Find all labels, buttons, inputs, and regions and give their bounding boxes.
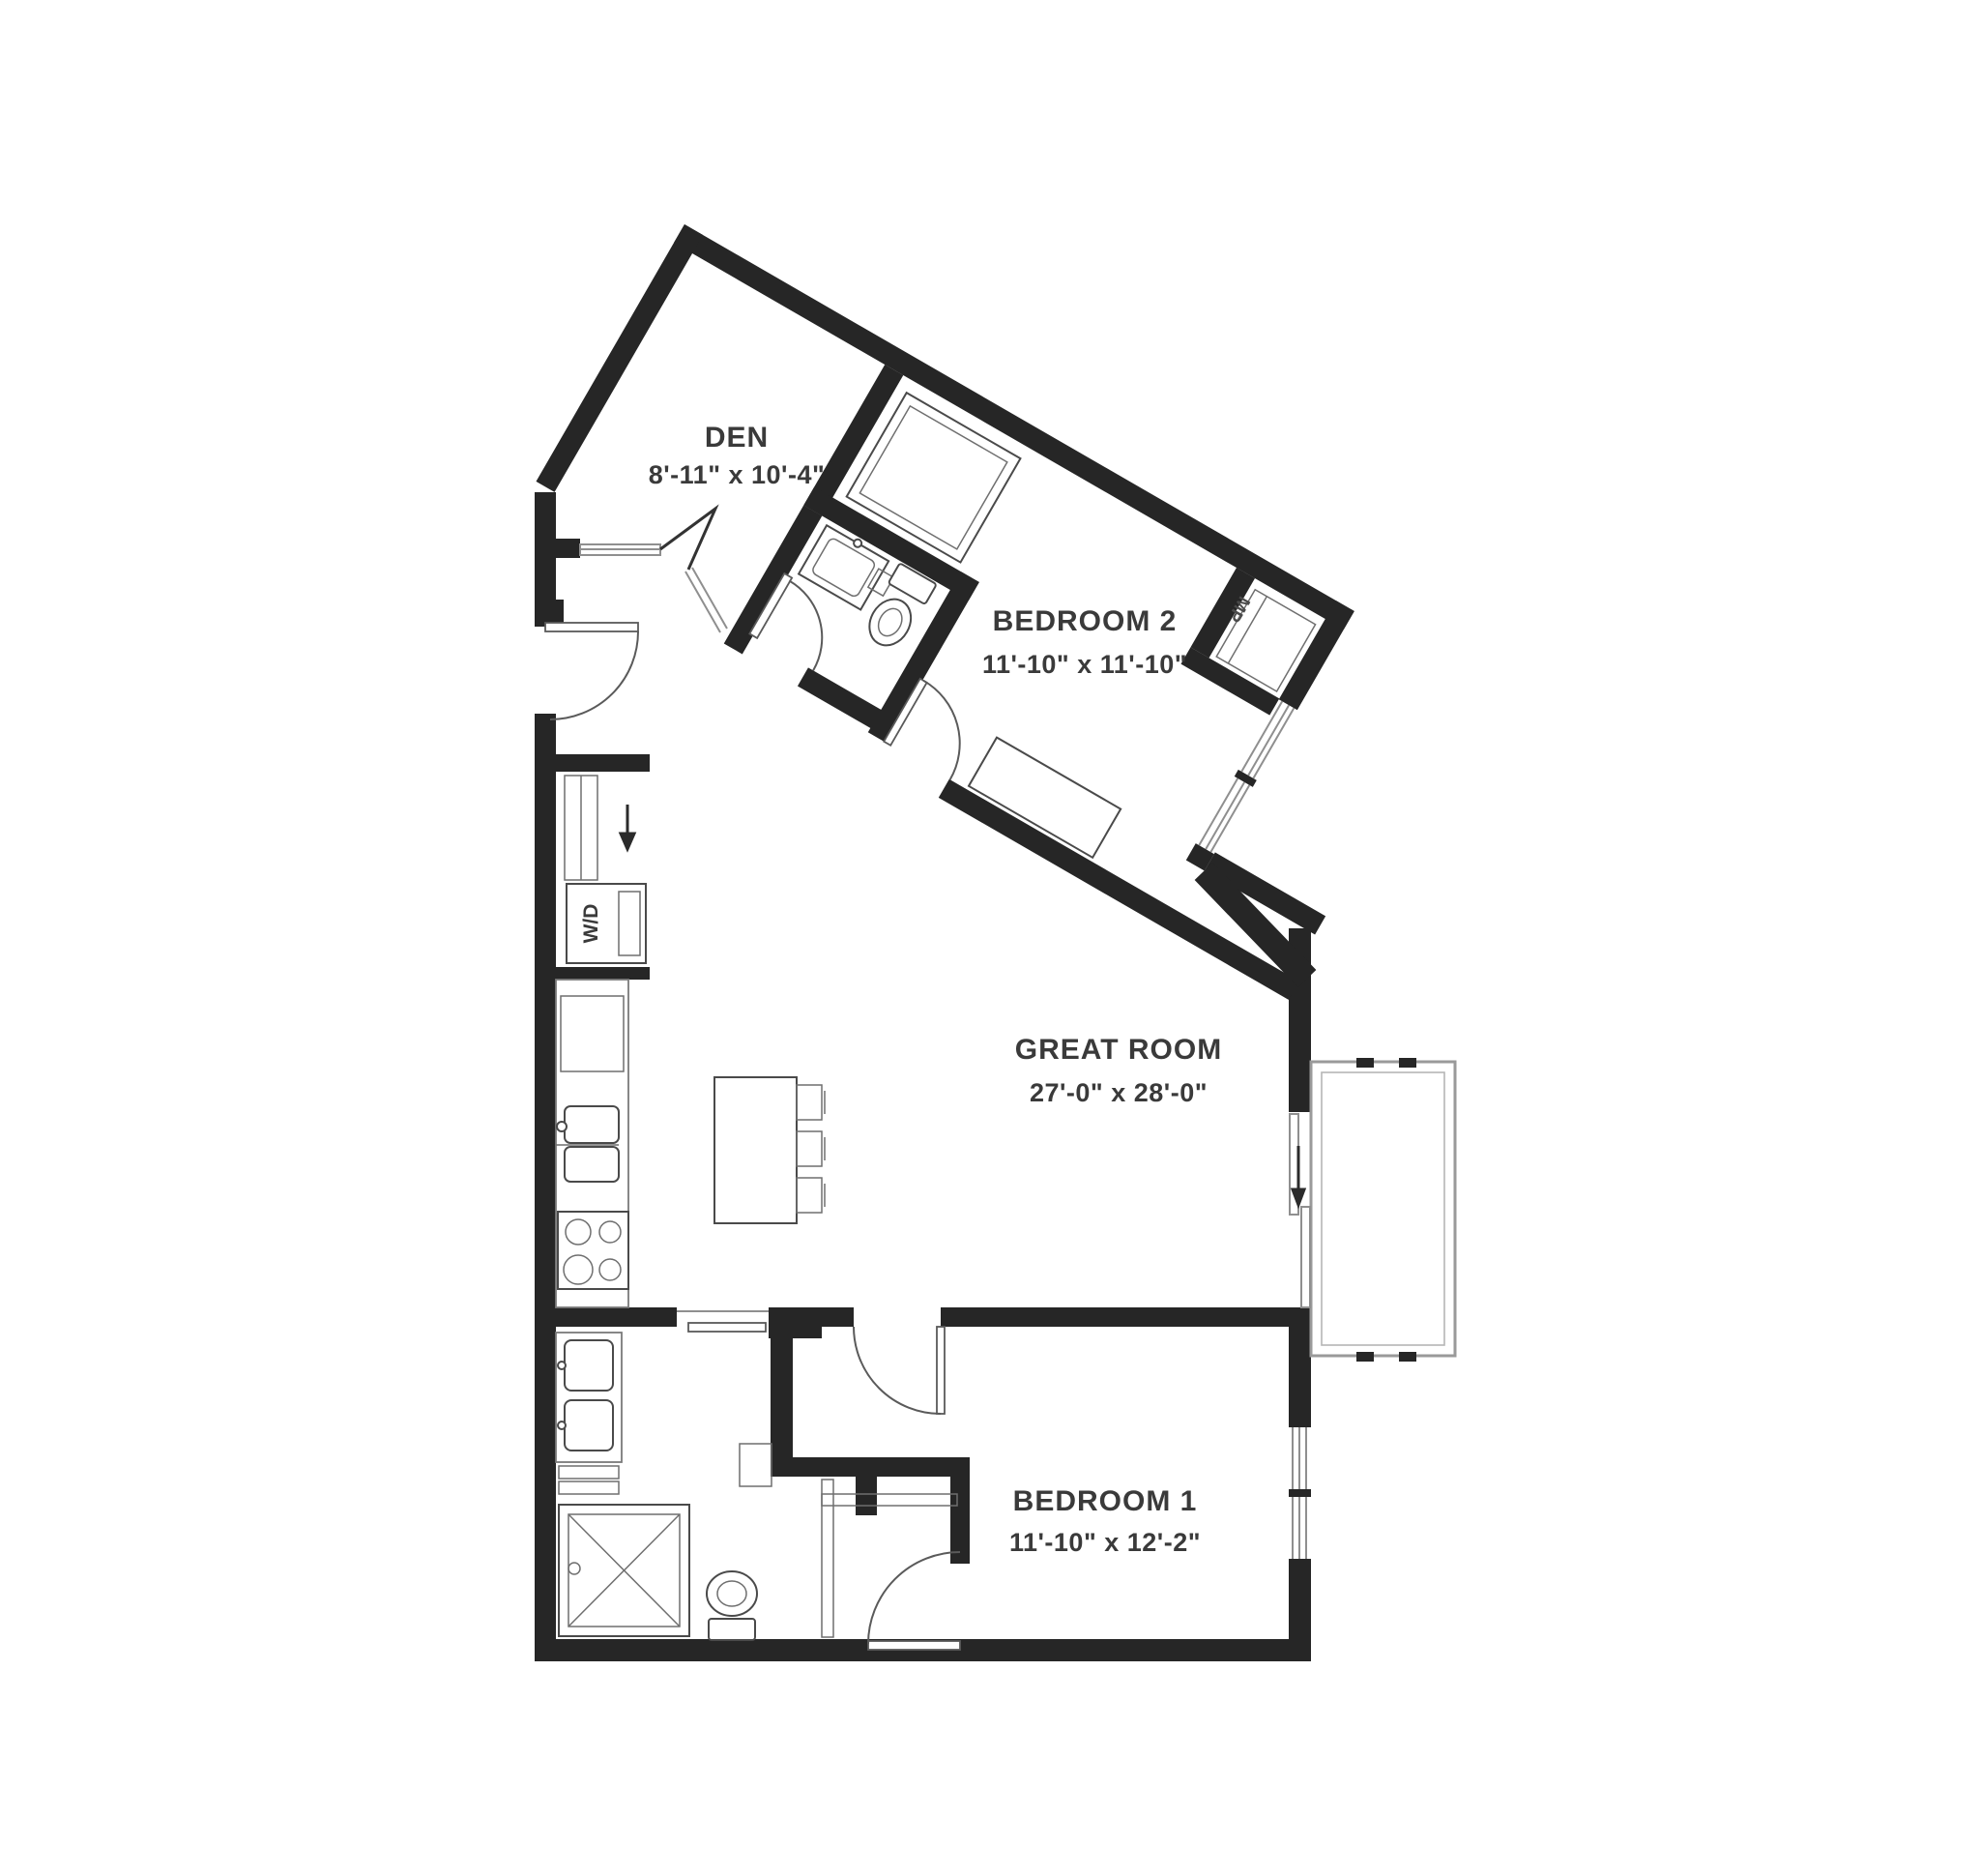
faucet-icon [558, 1362, 566, 1369]
wall-east-mullion [1289, 1489, 1311, 1497]
faucet-icon [558, 1422, 566, 1429]
laundry-arrow-head [621, 834, 634, 849]
closet-door-arc [868, 1552, 960, 1644]
bedroom2-label: BEDROOM 2 [993, 605, 1178, 637]
island-stool [797, 1085, 822, 1120]
floorplan-page: W/D [0, 0, 1980, 1876]
bath1-cabinet [740, 1444, 772, 1486]
kitchen [556, 980, 825, 1307]
balcony-tick [1399, 1352, 1416, 1362]
bath1-sink1 [565, 1340, 613, 1391]
wall-toilet-nook [856, 1477, 877, 1515]
island-stool [797, 1178, 822, 1213]
bath1-shelf [559, 1466, 619, 1479]
balcony-inner [1322, 1072, 1444, 1345]
den-label: DEN [705, 422, 769, 454]
wall-entry-notch [535, 539, 580, 558]
entry-door-arc [550, 631, 638, 719]
wall-bed2-closet-bottom [1180, 647, 1279, 715]
balcony [1290, 1058, 1455, 1362]
wall-east-mid [1289, 1307, 1311, 1427]
laundry-closet: W/D [565, 776, 646, 963]
wall-den-left [537, 224, 704, 492]
great-room-dims: 27'-0" x 28'-0" [1030, 1078, 1208, 1107]
wall-closet-top [771, 1457, 970, 1477]
closet-door-leaf [868, 1641, 960, 1650]
window-glyph [1293, 1497, 1306, 1559]
bedroom2-dims: 11'-10" x 11'-10" [982, 650, 1187, 679]
bath1-shelf [559, 1481, 619, 1494]
sliding-door-panel [1301, 1207, 1310, 1307]
wall-bed2-right-a [1279, 601, 1354, 710]
washer-dryer-label: W/D [580, 904, 602, 944]
closet-shelf-top [822, 1494, 957, 1506]
balcony-tick [1356, 1058, 1374, 1068]
den-door-ajar-icon [660, 509, 715, 570]
bedroom1-dims: 11'-10" x 12'-2" [1009, 1528, 1201, 1557]
closet-shelf-left [822, 1480, 833, 1637]
wall-east-lower [1289, 1559, 1311, 1661]
window-glyph [1293, 1427, 1306, 1489]
bath1-sink2 [565, 1400, 613, 1451]
den-dims: 8'-11" x 10'-4" [649, 460, 826, 489]
island-stool [797, 1131, 822, 1166]
bathroom-1 [556, 1333, 772, 1640]
kitchen-sink-basin1 [565, 1106, 619, 1143]
wall-left-lower [535, 714, 556, 1661]
kitchen-island [714, 1077, 797, 1223]
room-labels: DEN 8'-11" x 10'-4" BEDROOM 2 11'-10" x … [649, 422, 1223, 1557]
bedroom1-label: BEDROOM 1 [1013, 1485, 1198, 1517]
wall-wd-top [535, 754, 650, 772]
wall-bath-east [771, 1327, 793, 1477]
balcony-tick [1356, 1352, 1374, 1362]
wall-wd-bottom [535, 967, 650, 980]
floorplan-drawing: W/D [0, 0, 1980, 1876]
interior-walls [535, 754, 1289, 1564]
toilet-tank [709, 1619, 755, 1640]
pocket-door-leaf [688, 1323, 766, 1332]
wall-greatroom-bedroom1 [941, 1307, 1289, 1327]
balcony-tick [1399, 1058, 1416, 1068]
kitchen-sink-basin2 [565, 1147, 619, 1182]
entry-sidelight [685, 568, 727, 632]
wall-kitchen-bath [535, 1307, 677, 1327]
toilet-icon [707, 1571, 757, 1616]
toilet-icon [861, 592, 919, 653]
bedroom1-door-arc [854, 1327, 941, 1414]
wall-closet-right [950, 1477, 970, 1564]
bedroom1-door-leaf [937, 1327, 945, 1414]
bath-pocket-door [677, 1311, 769, 1332]
balcony-outline [1311, 1062, 1455, 1356]
kitchen-faucet-icon [557, 1122, 567, 1131]
bedroom1-closet [822, 1480, 960, 1650]
window-glyph [1199, 778, 1249, 852]
great-room-label: GREAT ROOM [1015, 1034, 1222, 1066]
entry-door-leaf [545, 623, 638, 631]
washer-dryer-icon [567, 884, 646, 963]
bedroom1-door [854, 1327, 945, 1414]
